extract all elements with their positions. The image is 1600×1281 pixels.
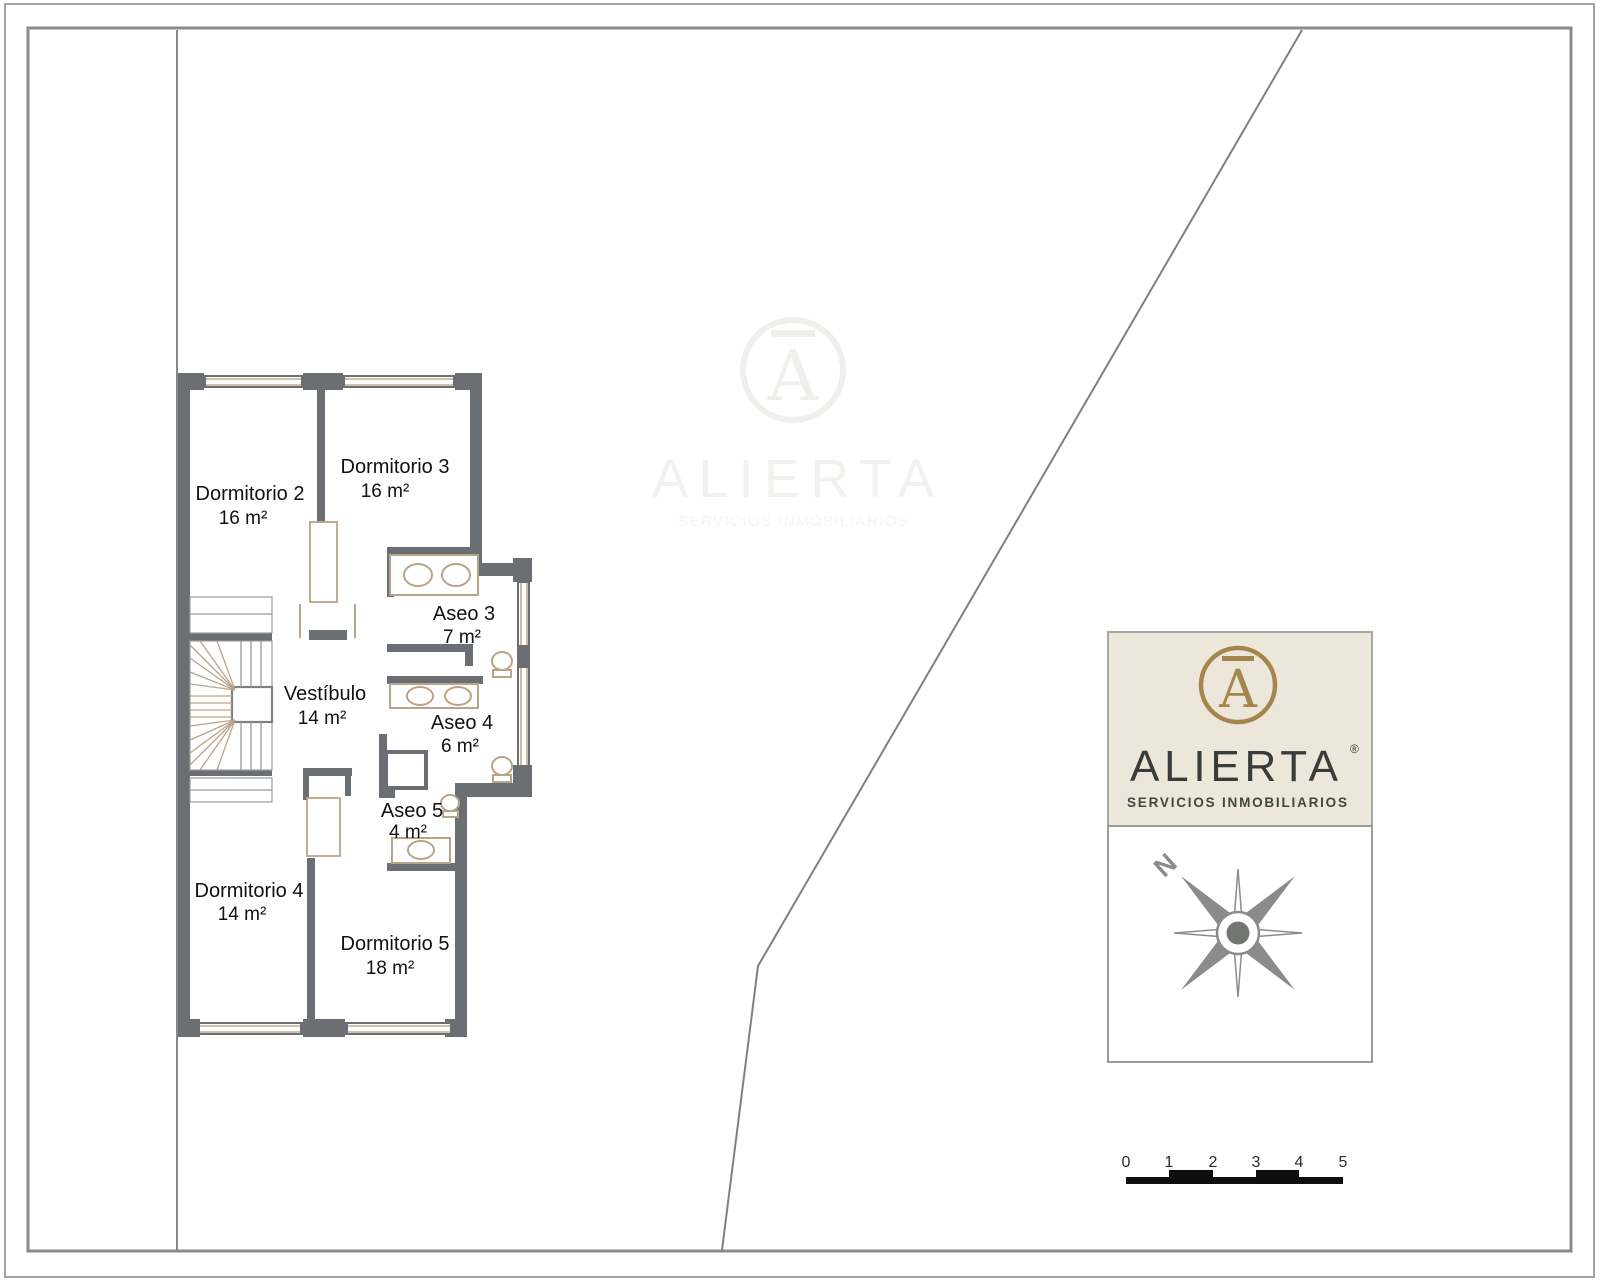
scale-tick-3: 3 bbox=[1252, 1154, 1261, 1171]
scale-bar-labels: 0 1 2 3 4 5 bbox=[1122, 1154, 1348, 1171]
registered-mark: ® bbox=[1350, 742, 1359, 756]
brand-sign: A ALIERTA ® SERVICIOS INMOBILIARIOS bbox=[1108, 632, 1372, 1062]
toilet-aseo5 bbox=[441, 795, 459, 817]
room-label-aseo5: Aseo 5 bbox=[381, 800, 443, 822]
room-area-vestibulo: 14 m² bbox=[298, 708, 347, 729]
room-label-dormitorio3: Dormitorio 3 bbox=[341, 456, 450, 478]
room-label-dormitorio2: Dormitorio 2 bbox=[196, 483, 305, 505]
toilet-aseo4 bbox=[492, 757, 512, 782]
room-label-dormitorio4: Dormitorio 4 bbox=[195, 880, 304, 902]
room-area-dormitorio5: 18 m² bbox=[366, 958, 415, 979]
floor-plan: Dormitorio 2 16 m² Dormitorio 3 16 m² As… bbox=[178, 373, 532, 1037]
brand-monogram: A bbox=[1218, 660, 1258, 720]
room-label-aseo3: Aseo 3 bbox=[433, 603, 495, 625]
room-label-dormitorio5: Dormitorio 5 bbox=[341, 933, 450, 955]
room-area-aseo3: 7 m² bbox=[443, 627, 481, 648]
scale-bar: 0 1 2 3 4 5 bbox=[1122, 1154, 1348, 1184]
scale-tick-0: 0 bbox=[1122, 1154, 1131, 1171]
watermark: A ALIERTA SERVICIOS INMOBILIARIOS bbox=[652, 320, 934, 530]
floorplan-document: A ALIERTA SERVICIOS INMOBILIARIOS bbox=[0, 0, 1600, 1281]
scale-tick-1: 1 bbox=[1165, 1154, 1174, 1171]
scale-tick-2: 2 bbox=[1209, 1154, 1218, 1171]
stair-landing bbox=[232, 687, 272, 722]
watermark-brand: ALIERTA bbox=[652, 449, 934, 509]
scale-tick-5: 5 bbox=[1339, 1154, 1348, 1171]
room-area-dormitorio2: 16 m² bbox=[219, 508, 268, 529]
room-area-aseo5: 4 m² bbox=[389, 822, 427, 843]
compass-center-dot bbox=[1227, 922, 1250, 945]
room-label-vestibulo: Vestíbulo bbox=[284, 683, 366, 705]
shower bbox=[386, 752, 426, 788]
scale-bar-segments bbox=[1126, 1170, 1343, 1184]
room-area-dormitorio3: 16 m² bbox=[361, 481, 410, 502]
watermark-tagline: SERVICIOS INMOBILIARIOS bbox=[678, 513, 908, 530]
room-label-aseo4: Aseo 4 bbox=[431, 712, 493, 734]
room-area-aseo4: 6 m² bbox=[441, 736, 479, 757]
scale-tick-4: 4 bbox=[1295, 1154, 1304, 1171]
watermark-monogram: A bbox=[767, 335, 820, 417]
room-area-dormitorio4: 14 m² bbox=[218, 904, 267, 925]
brand-tagline: SERVICIOS INMOBILIARIOS bbox=[1127, 795, 1347, 810]
toilet-aseo3 bbox=[492, 652, 512, 677]
